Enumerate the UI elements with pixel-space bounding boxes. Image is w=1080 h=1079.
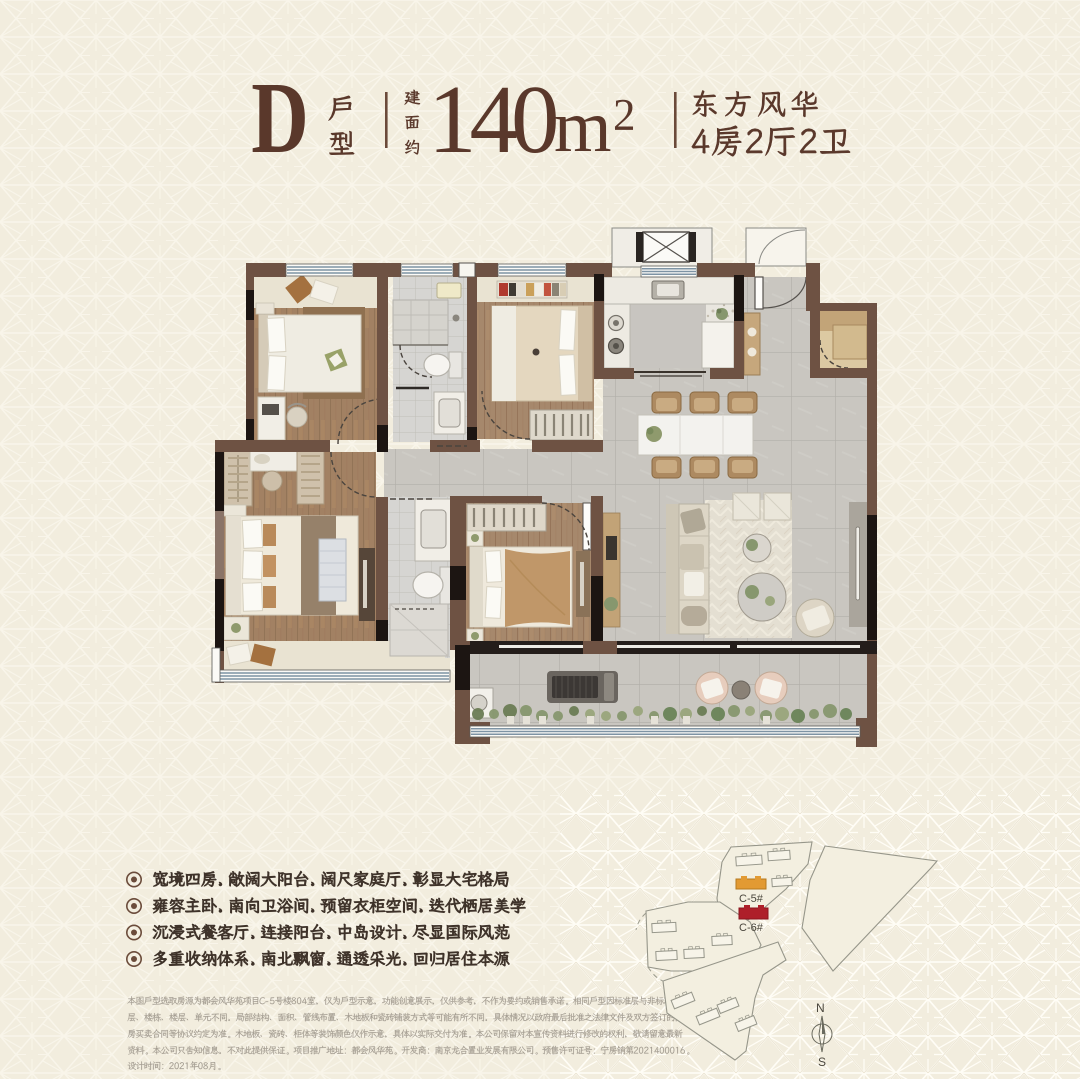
svg-text:C-6#: C-6# (739, 922, 764, 934)
svg-text:C-5#: C-5# (739, 893, 764, 905)
svg-text:S: S (818, 1055, 826, 1069)
svg-text:N: N (816, 1001, 825, 1015)
svg-text:140: 140 (428, 66, 556, 173)
svg-text:2: 2 (613, 90, 636, 140)
svg-text:m: m (554, 86, 612, 168)
svg-text:D: D (251, 61, 308, 175)
